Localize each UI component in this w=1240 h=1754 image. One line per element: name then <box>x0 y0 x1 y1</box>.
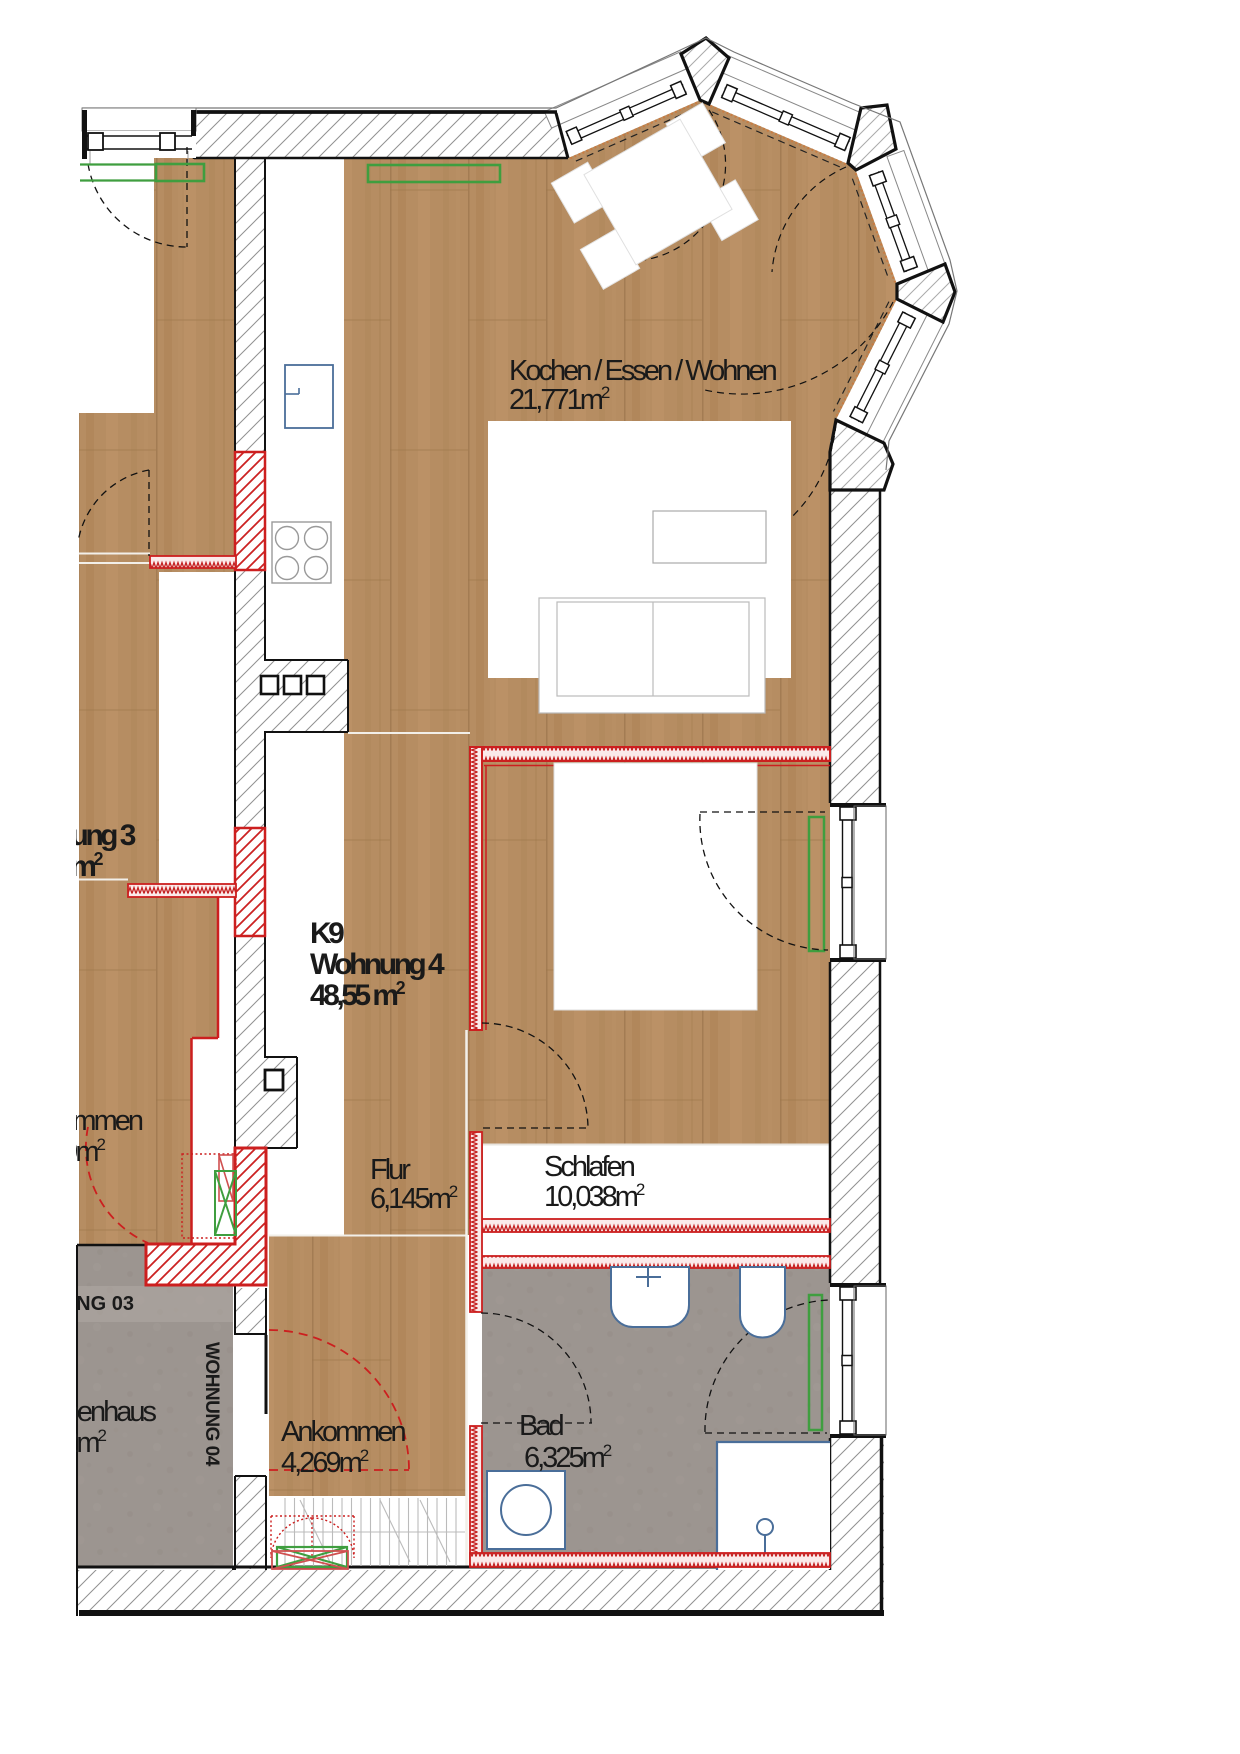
svg-text:WOHNUNG 04: WOHNUNG 04 <box>201 1342 222 1467</box>
svg-text:4,269m2: 4,269m2 <box>281 1446 369 1479</box>
svg-text:Wohnung 4: Wohnung 4 <box>310 948 445 981</box>
svg-text:Bad: Bad <box>519 1410 563 1442</box>
svg-text:6,145m2: 6,145m2 <box>370 1182 458 1215</box>
svg-text:K9: K9 <box>310 917 344 950</box>
svg-text:21,771m2: 21,771m2 <box>509 383 610 416</box>
svg-text:48,55 m2: 48,55 m2 <box>310 978 406 1012</box>
svg-text:Schlafen: Schlafen <box>544 1151 635 1183</box>
svg-text:6,325m2: 6,325m2 <box>524 1441 612 1474</box>
svg-text:Ankommen: Ankommen <box>281 1416 406 1448</box>
svg-text:Flur: Flur <box>370 1154 411 1186</box>
svg-text:10,038m2: 10,038m2 <box>544 1180 645 1213</box>
svg-text:Kochen / Essen / Wohnen: Kochen / Essen / Wohnen <box>509 355 777 387</box>
